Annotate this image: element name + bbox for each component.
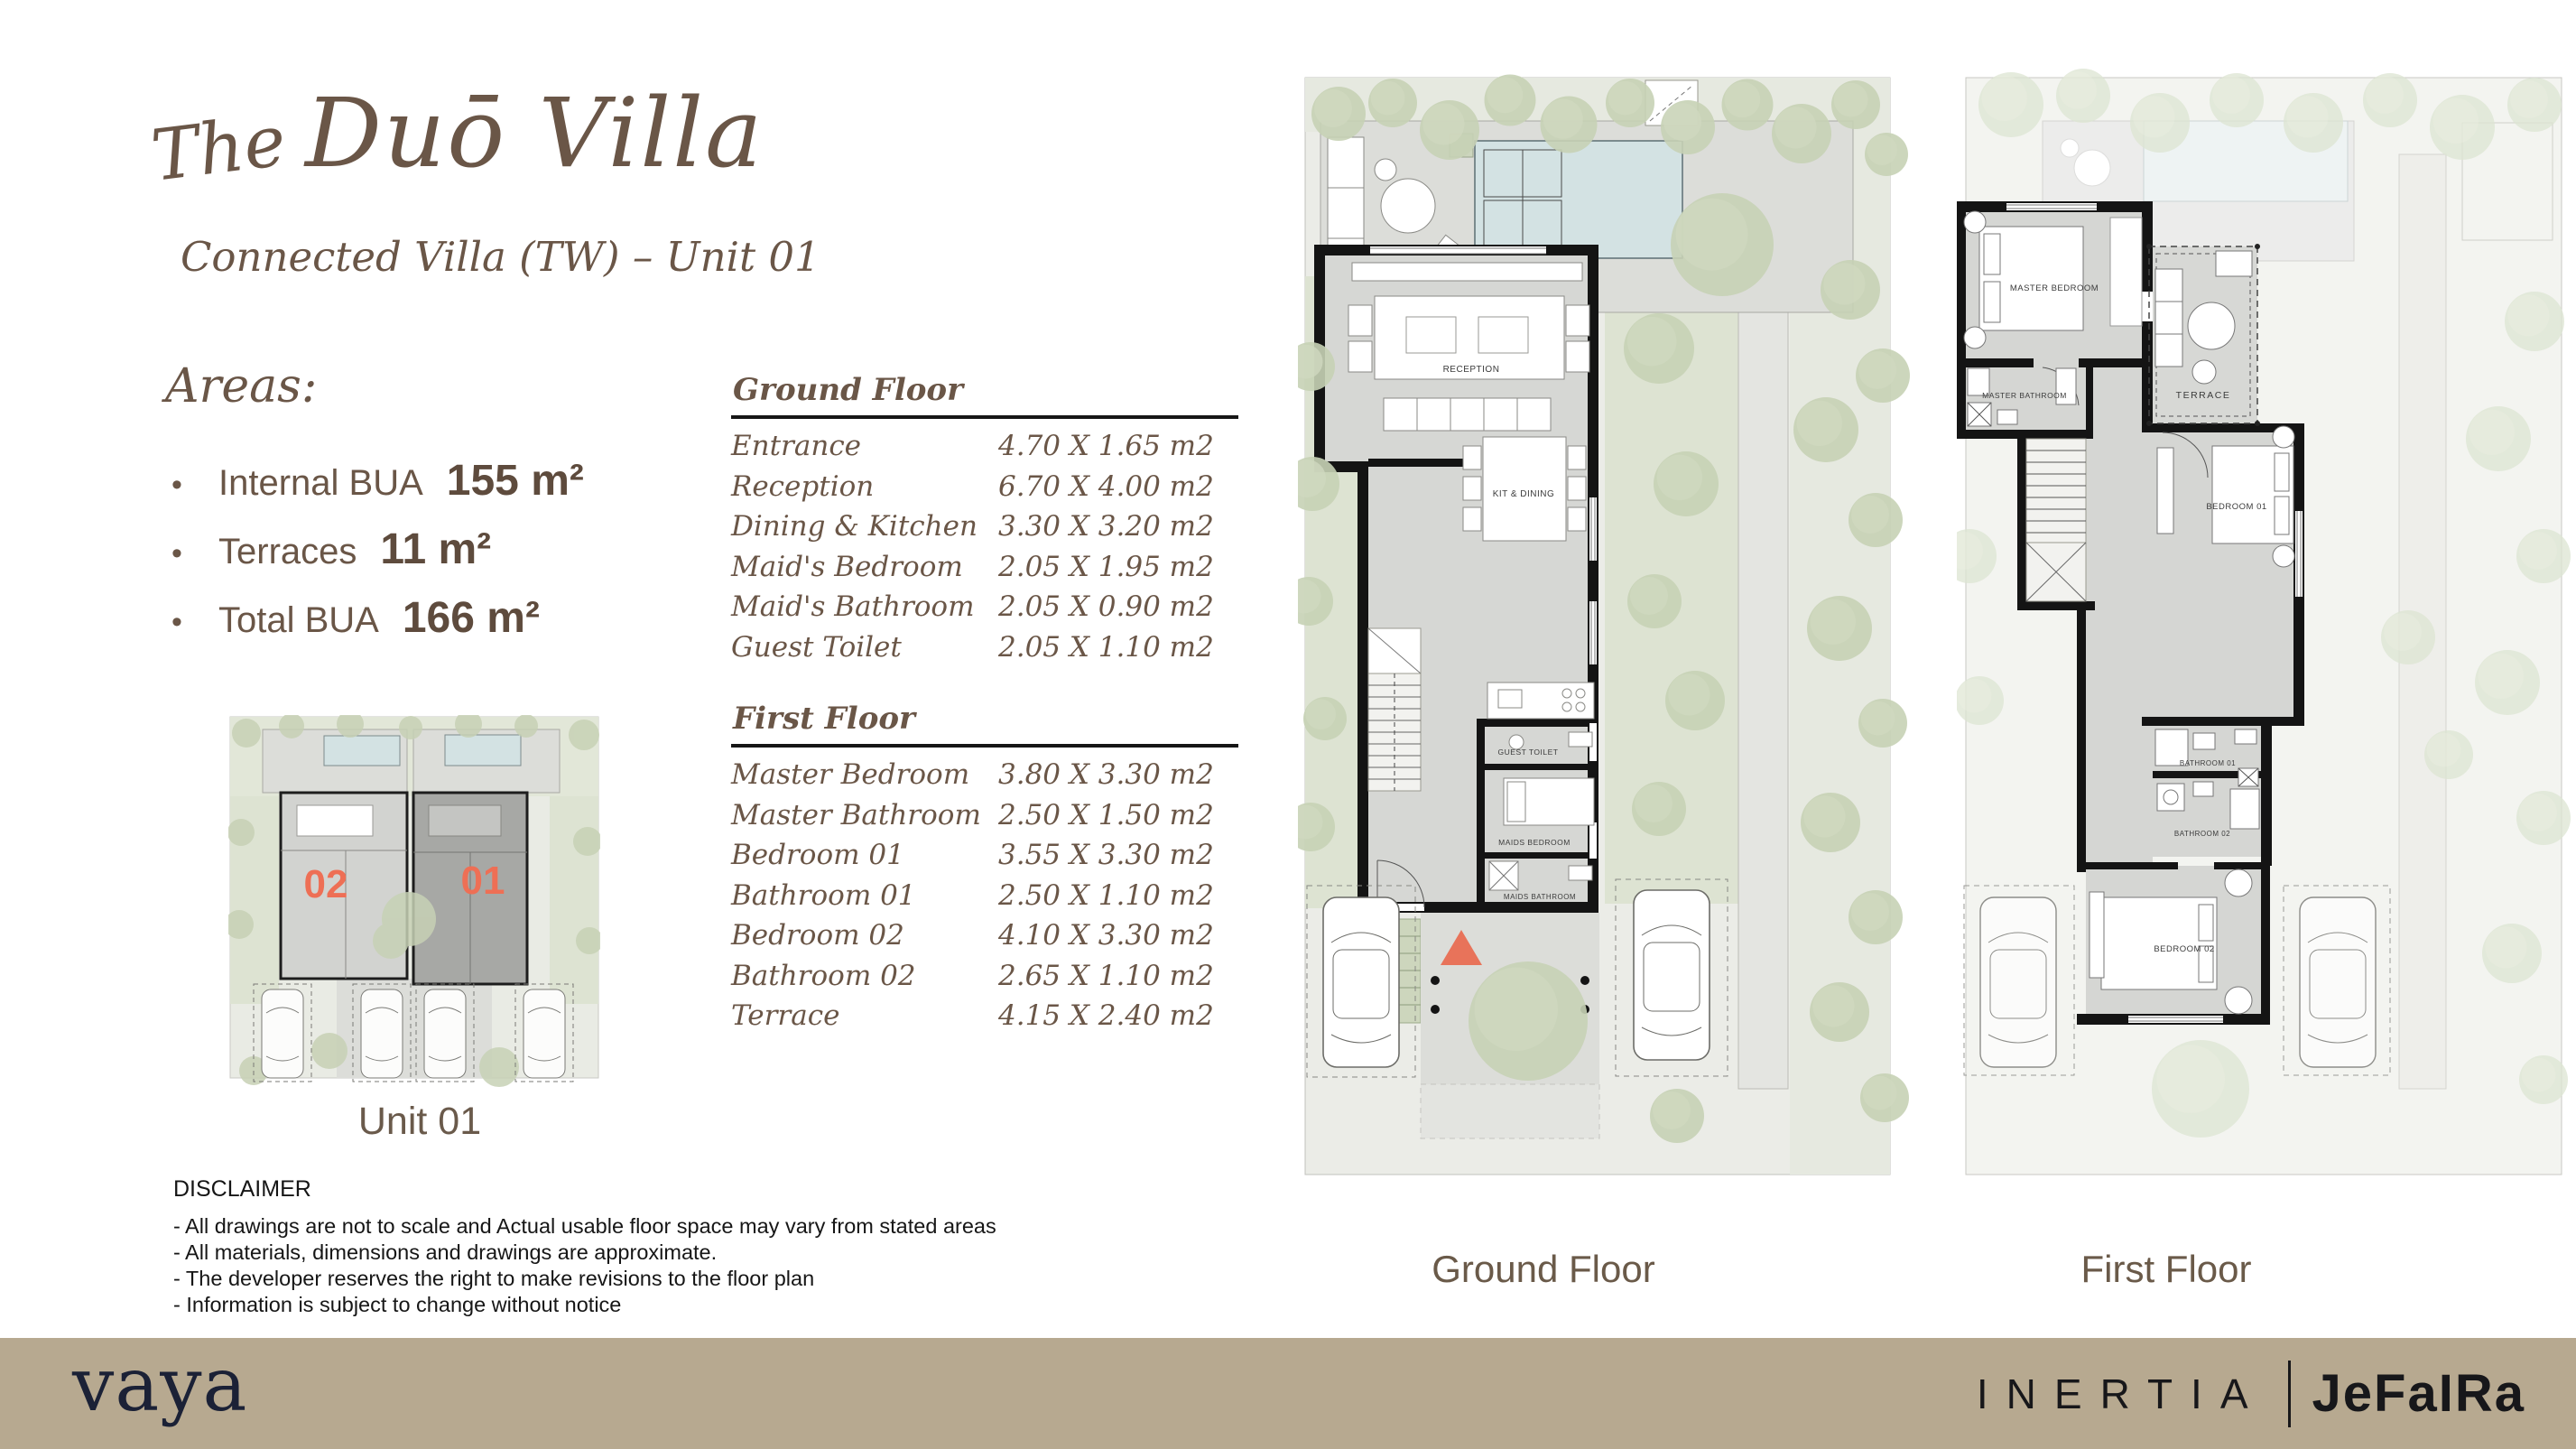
table-row: Bathroom 012.50 X 1.10 m2 [731, 876, 1238, 916]
room-dims: 2.65 X 1.10 m2 [998, 956, 1238, 997]
table-row: Bedroom 013.55 X 3.30 m2 [731, 835, 1238, 876]
room-dims: 2.05 X 1.10 m2 [998, 627, 1238, 668]
room-name: Entrance [731, 426, 998, 467]
table-row: Reception6.70 X 4.00 m2 [731, 467, 1238, 507]
footer-bar: vaya INERTIA JeFaIRa [0, 1338, 2576, 1449]
table-row: Bedroom 024.10 X 3.30 m2 [731, 915, 1238, 956]
room-name: Master Bathroom [731, 795, 998, 836]
table-row: Dining & Kitchen3.30 X 3.20 m2 [731, 506, 1238, 547]
reception-label: RECEPTION [1443, 365, 1500, 375]
brand-script-word: The [147, 100, 290, 197]
guest-toilet-label: GUEST TOILET [1498, 748, 1559, 757]
first-floor-caption: First Floor [2022, 1248, 2311, 1291]
site-plan-caption: Unit 01 [298, 1100, 542, 1144]
room-dims: 2.05 X 1.95 m2 [998, 547, 1238, 588]
ground-floor-table: Ground Floor Entrance4.70 X 1.65 m2 Rece… [731, 372, 1238, 667]
maids-bathroom-label: MAIDS BATHROOM [1504, 893, 1576, 901]
page-subtitle: Connected Villa (TW) – Unit 01 [181, 233, 820, 281]
room-dims: 6.70 X 4.00 m2 [998, 467, 1238, 507]
room-name: Bedroom 02 [731, 915, 998, 956]
room-dims: 2.05 X 0.90 m2 [998, 587, 1238, 627]
site-unit-01-label: 01 [461, 859, 505, 903]
first-floor-table: First Floor Master Bedroom3.80 X 3.30 m2… [731, 701, 1238, 1036]
disclaimer-block: DISCLAIMER - All drawings are not to sca… [173, 1176, 996, 1318]
table-title: First Floor [731, 701, 1238, 744]
site-unit-02-label: 02 [304, 862, 348, 906]
parked-car-left [1307, 886, 1415, 1077]
disclaimer-line: - All materials, dimensions and drawings… [173, 1240, 996, 1266]
table-title: Ground Floor [731, 372, 1238, 415]
disclaimer-line: - All drawings are not to scale and Actu… [173, 1213, 996, 1240]
area-value: 11 m² [380, 525, 491, 574]
disclaimer-heading: DISCLAIMER [173, 1176, 996, 1203]
ground-floor-caption: Ground Floor [1399, 1248, 1688, 1291]
vaya-logo: vaya [72, 1345, 247, 1426]
area-label: Terraces [218, 532, 357, 572]
terrace-label: TERRACE [2176, 390, 2231, 401]
room-dims: 4.10 X 3.30 m2 [998, 915, 1238, 956]
inertia-logo: INERTIA [1977, 1370, 2266, 1418]
parked-car-right [2284, 886, 2390, 1075]
bullet-icon: • [171, 536, 218, 571]
room-dims: 3.55 X 3.30 m2 [998, 835, 1238, 876]
areas-heading: Areas: [165, 359, 317, 413]
room-dims: 3.80 X 3.30 m2 [998, 755, 1238, 795]
disclaimer-line: - The developer reserves the right to ma… [173, 1266, 996, 1292]
bathroom-01-label: BATHROOM 01 [2180, 759, 2236, 767]
table-row: Master Bathroom2.50 X 1.50 m2 [731, 795, 1238, 836]
room-name: Reception [731, 467, 998, 507]
area-label: Total BUA [218, 600, 379, 641]
bedroom-02-label: BEDROOM 02 [2154, 944, 2214, 954]
kitchen-label: KIT & DINING [1493, 489, 1555, 499]
stairs [1368, 628, 1421, 791]
room-dims: 4.15 X 2.40 m2 [998, 996, 1238, 1036]
bullet-icon: • [171, 605, 218, 640]
bathroom-02-label: BATHROOM 02 [2174, 830, 2230, 838]
logo-divider [2288, 1361, 2291, 1427]
flyer-page: The Duō Villa Connected Villa (TW) – Uni… [0, 0, 2576, 1449]
jefaira-logo: JeFaIRa [2312, 1363, 2525, 1424]
table-row: Maid's Bathroom2.05 X 0.90 m2 [731, 587, 1238, 627]
room-name: Bedroom 01 [731, 835, 998, 876]
pool [1475, 141, 1682, 258]
bedroom-01-label: BEDROOM 01 [2206, 502, 2266, 512]
table-row: Maid's Bedroom2.05 X 1.95 m2 [731, 547, 1238, 588]
table-row: Entrance4.70 X 1.65 m2 [731, 426, 1238, 467]
master-bathroom-label: MASTER BATHROOM [1982, 391, 2067, 400]
area-value: 155 m² [447, 456, 584, 506]
room-dims: 2.50 X 1.50 m2 [998, 795, 1238, 836]
first-floor-plan: MASTER BEDROOM MASTER BATHROOM TERRACE B… [1957, 51, 2576, 1235]
room-name: Dining & Kitchen [731, 506, 998, 547]
master-bedroom-label: MASTER BEDROOM [2010, 283, 2099, 293]
area-label: Internal BUA [218, 463, 423, 504]
maids-bedroom-label: MAIDS BEDROOM [1498, 838, 1571, 847]
room-name: Maid's Bedroom [731, 547, 998, 588]
area-item-total-bua: • Total BUA 166 m² [171, 593, 584, 643]
table-row: Master Bedroom3.80 X 3.30 m2 [731, 755, 1238, 795]
room-name: Bathroom 01 [731, 876, 998, 916]
table-rule [731, 415, 1238, 419]
area-value: 166 m² [403, 593, 540, 643]
ground-floor-plan: RECEPTION KIT & DINING GUEST TOILET MAID… [1298, 51, 1913, 1235]
room-name: Guest Toilet [731, 627, 998, 668]
disclaimer-line: - Information is subject to change witho… [173, 1292, 996, 1318]
developer-logos: INERTIA JeFaIRa [1977, 1338, 2525, 1449]
area-item-terraces: • Terraces 11 m² [171, 525, 584, 574]
bullet-icon: • [171, 468, 218, 503]
area-item-internal-bua: • Internal BUA 155 m² [171, 456, 584, 506]
room-name: Terrace [731, 996, 998, 1036]
room-name: Bathroom 02 [731, 956, 998, 997]
room-dims: 4.70 X 1.65 m2 [998, 426, 1238, 467]
page-title: Duō Villa [305, 78, 764, 189]
room-name: Maid's Bathroom [731, 587, 998, 627]
areas-list: • Internal BUA 155 m² • Terraces 11 m² •… [171, 456, 584, 662]
room-dims: 3.30 X 3.20 m2 [998, 506, 1238, 547]
table-rule [731, 744, 1238, 748]
table-row: Guest Toilet2.05 X 1.10 m2 [731, 627, 1238, 668]
room-name: Master Bedroom [731, 755, 998, 795]
table-row: Bathroom 022.65 X 1.10 m2 [731, 956, 1238, 997]
room-dims: 2.50 X 1.10 m2 [998, 876, 1238, 916]
site-plan-map: 02 01 [228, 715, 600, 1089]
table-row: Terrace4.15 X 2.40 m2 [731, 996, 1238, 1036]
stairs [2026, 439, 2086, 601]
